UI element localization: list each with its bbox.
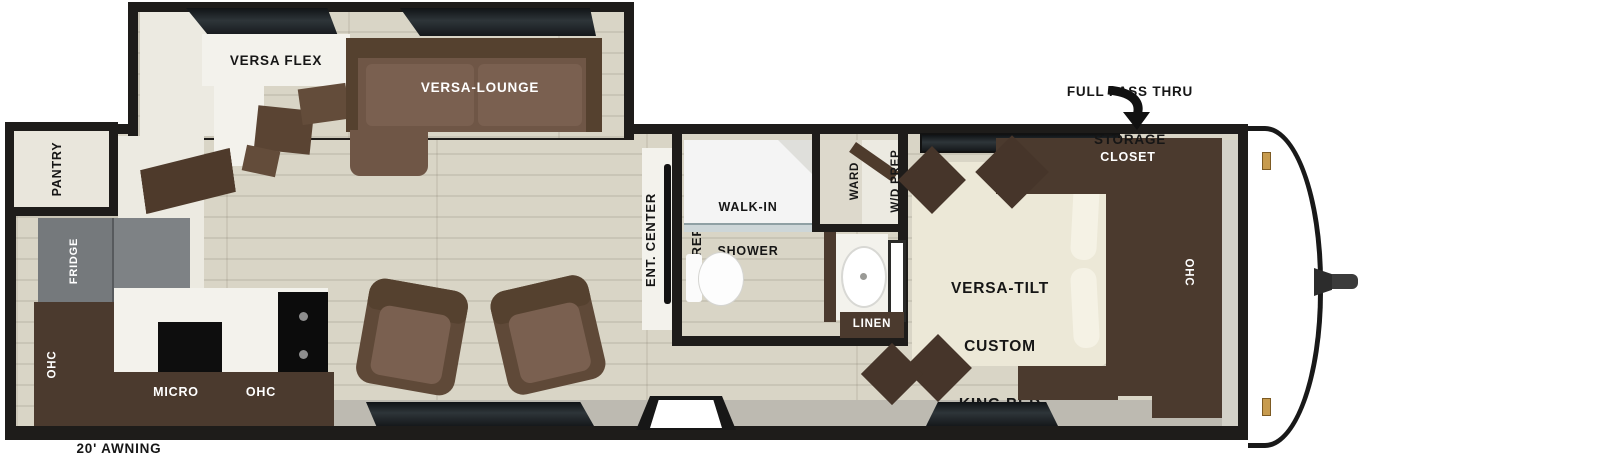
sink-drain (860, 273, 867, 280)
wardrobe-label-line1: WARD (849, 138, 863, 224)
drawer-knob (299, 350, 308, 359)
floorplan-canvas: VERSA FLEX VERSA-LOUNGE PANTRY FRIDGE OH… (0, 0, 1600, 467)
kitchen-ohc-wall-label: OHC (47, 335, 62, 395)
slideout-window-icon (396, 8, 596, 36)
bed-side-cabinet (1106, 186, 1154, 396)
ent-center-label: ENT. CENTER W/ FIREPLACE (612, 155, 648, 325)
living-window-icon (366, 402, 594, 426)
front-cap (1248, 126, 1323, 448)
chair-seat (507, 301, 593, 385)
bedroom-window-icon (926, 402, 1058, 426)
storage-arrow-icon (1100, 86, 1156, 130)
sink (841, 246, 887, 308)
vanity-side (824, 232, 836, 322)
bed-label-line1: VERSA-TILT (900, 279, 1100, 298)
bedroom-right-lining (1222, 140, 1238, 426)
versa-lounge-label: VERSA-LOUNGE (390, 80, 570, 96)
versa-flex-label: VERSA FLEX (202, 53, 350, 69)
fridge-label: FRIDGE (68, 221, 84, 301)
cooktop (158, 322, 222, 372)
drawer-knob (299, 312, 308, 321)
micro-label: MICRO (136, 385, 216, 400)
wall-ward-bottom (812, 224, 906, 232)
drawer-unit (278, 292, 328, 374)
shower-corner-seat (778, 140, 812, 174)
wall-bath-left (672, 134, 682, 346)
linen-label: LINEN (840, 318, 904, 332)
shower-label-line1: WALK-IN (684, 200, 812, 215)
sofa-arm (586, 38, 602, 132)
shower-label-line2: SHOWER (684, 244, 812, 259)
sofa-chaise (350, 130, 428, 176)
camp-kitchen-label: EXT. CAMP KITCHEN (162, 433, 342, 467)
toilet-bowl (698, 252, 744, 306)
entry-door (650, 400, 722, 428)
swivel-chair (354, 276, 471, 398)
marker-light-icon (1262, 152, 1271, 170)
kitchen-counter-side (74, 302, 114, 382)
bedroom-ohc-label: OHC (1180, 243, 1195, 303)
slideout-window-icon (186, 8, 338, 36)
sofa-back (346, 38, 602, 58)
chair-seat (369, 304, 452, 385)
ent-center-label-line1: ENT. CENTER (643, 155, 658, 325)
storage-label-line2: STORAGE (1030, 132, 1230, 148)
wall-shower-ward (812, 134, 820, 232)
hitch-coupler-icon (1314, 268, 1332, 296)
bed-foot-cabinet (1018, 366, 1118, 400)
kitchen-ohc-counter-label: OHC (226, 385, 296, 400)
marker-light-icon (1262, 398, 1271, 416)
pantry-label: PANTRY (50, 127, 70, 211)
sofa-arm (346, 38, 358, 132)
hitch-bar-icon (1332, 274, 1358, 289)
flex-stool (298, 83, 351, 125)
wardrobe-label: WARD W/D PREP OPTION (822, 138, 864, 224)
